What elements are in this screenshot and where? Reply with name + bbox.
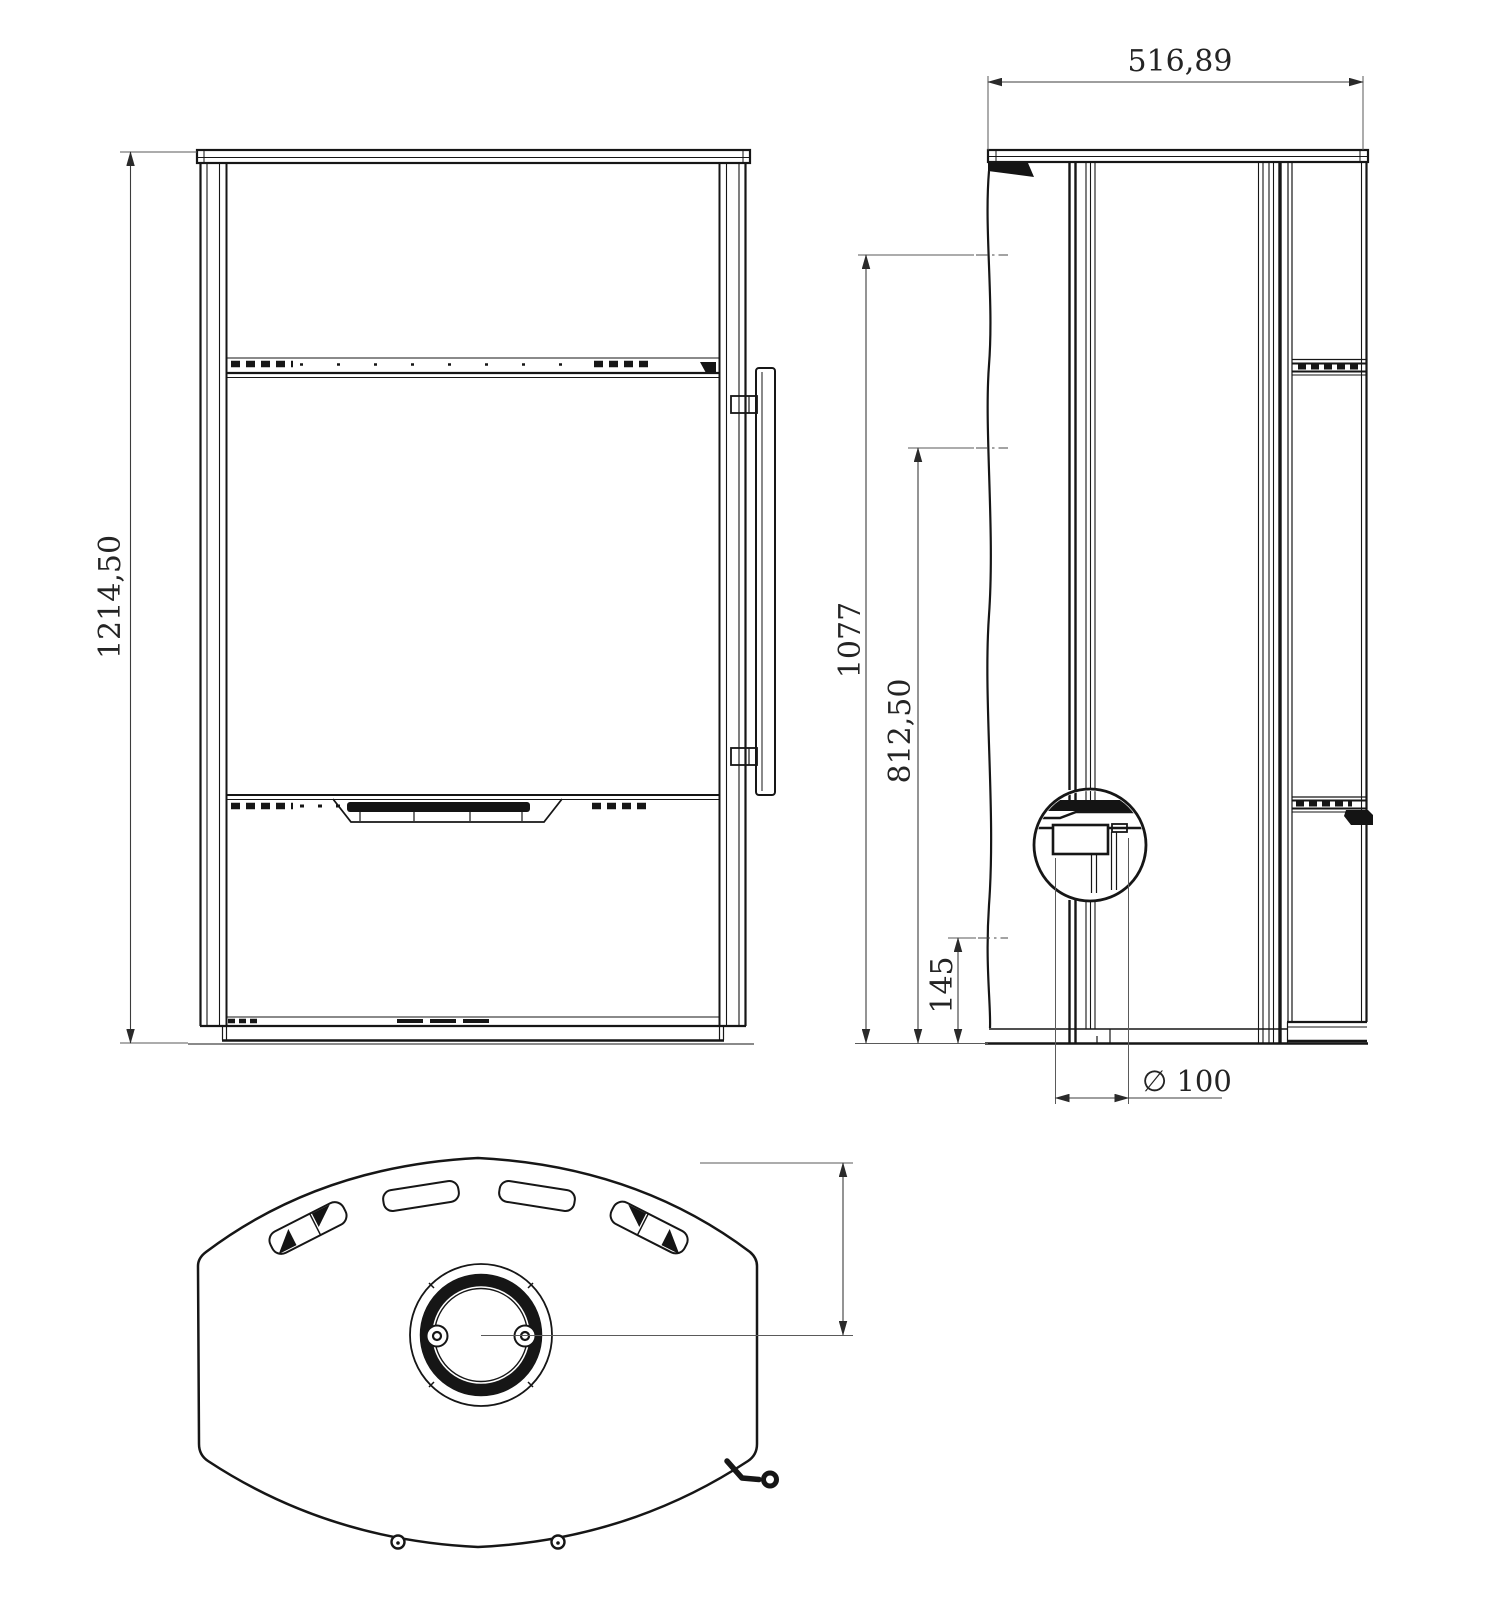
top-crank-handle <box>727 1461 777 1486</box>
side-door-handle <box>1344 810 1373 825</box>
front-latch-band <box>226 795 720 822</box>
side-intake-detail <box>1034 789 1146 901</box>
dimension-depth: 516,89 <box>988 44 1363 150</box>
side-back-edge <box>987 171 991 1028</box>
dimension-rear-outlet-height: 812,50 <box>883 448 974 1043</box>
depth-label: 516,89 <box>1128 44 1233 79</box>
rear-outlet-height-label: 812,50 <box>883 679 918 784</box>
top-view <box>198 1158 777 1549</box>
top-outline <box>198 1158 757 1547</box>
side-view <box>976 150 1373 1044</box>
dimension-overall-height: 1214,50 <box>93 152 197 1043</box>
side-convection-channel <box>1070 162 1096 1043</box>
side-front-column <box>1259 162 1293 1043</box>
technical-drawing: 1214,50 516,89 1077 812,50 145 ∅ 100 <box>0 0 1497 1597</box>
side-door-panel <box>1287 162 1373 1043</box>
front-louvre-band <box>226 358 720 378</box>
front-view <box>188 150 775 1044</box>
front-door-hinge <box>731 368 775 795</box>
overall-height-label: 1214,50 <box>93 535 128 659</box>
flue-height-label: 1077 <box>833 602 868 678</box>
side-rear-notch <box>988 163 1034 177</box>
front-base <box>188 1017 754 1044</box>
top-slot-inner-right <box>498 1180 576 1213</box>
top-slot-inner-left <box>382 1180 460 1213</box>
intake-diameter-label: ∅ 100 <box>1142 1064 1232 1098</box>
front-top-plate <box>197 150 750 163</box>
dimension-intake-height: 145 <box>925 938 976 1043</box>
front-latch-handle <box>347 802 530 812</box>
intake-height-label: 145 <box>925 956 960 1013</box>
front-side-frames <box>201 163 746 1026</box>
dimension-flue-height: 1077 <box>833 255 988 1044</box>
